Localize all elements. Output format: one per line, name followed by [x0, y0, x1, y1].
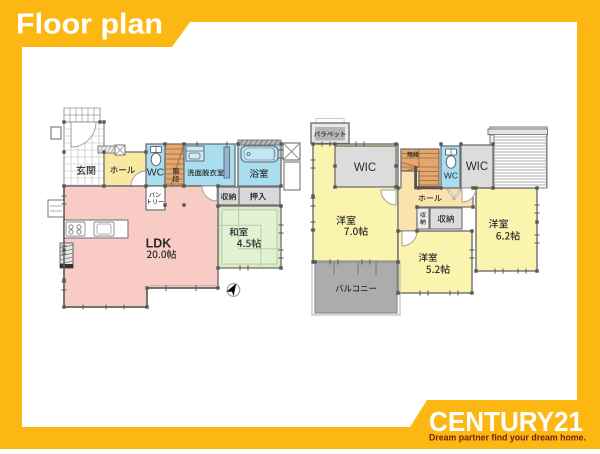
svg-text:WIC: WIC — [354, 162, 376, 174]
svg-text:WC: WC — [444, 171, 458, 181]
svg-text:WIC: WIC — [466, 161, 488, 173]
svg-text:Dream partner find your dream: Dream partner find your dream home. — [429, 433, 586, 443]
svg-text:WC: WC — [147, 167, 165, 179]
svg-text:Floor plan: Floor plan — [16, 9, 163, 41]
svg-text:LDK: LDK — [146, 237, 172, 251]
